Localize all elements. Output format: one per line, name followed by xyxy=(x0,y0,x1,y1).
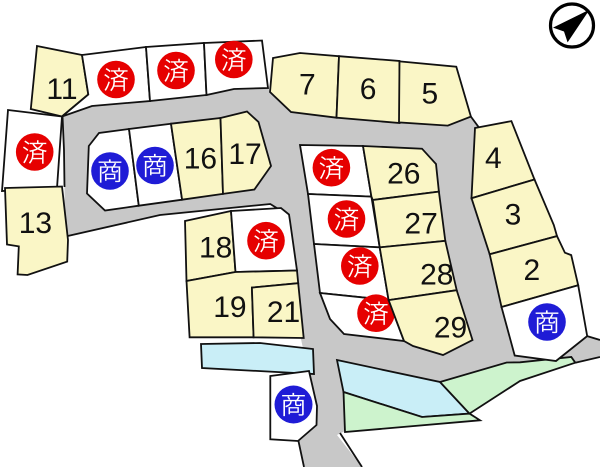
svg-text:21: 21 xyxy=(267,296,300,329)
svg-text:11: 11 xyxy=(46,73,77,106)
svg-text:3: 3 xyxy=(505,199,522,232)
svg-text:26: 26 xyxy=(387,157,420,190)
svg-text:6: 6 xyxy=(360,73,377,106)
svg-text:2: 2 xyxy=(523,254,540,287)
svg-text:5: 5 xyxy=(422,77,439,110)
svg-text:13: 13 xyxy=(19,207,52,240)
svg-text:17: 17 xyxy=(228,138,261,171)
svg-text:28: 28 xyxy=(420,259,453,292)
svg-text:29: 29 xyxy=(434,312,467,345)
svg-text:18: 18 xyxy=(199,231,232,264)
svg-text:7: 7 xyxy=(299,69,316,102)
svg-text:27: 27 xyxy=(404,208,437,241)
svg-text:19: 19 xyxy=(213,291,246,324)
svg-text:4: 4 xyxy=(485,142,502,175)
svg-text:16: 16 xyxy=(184,142,217,175)
